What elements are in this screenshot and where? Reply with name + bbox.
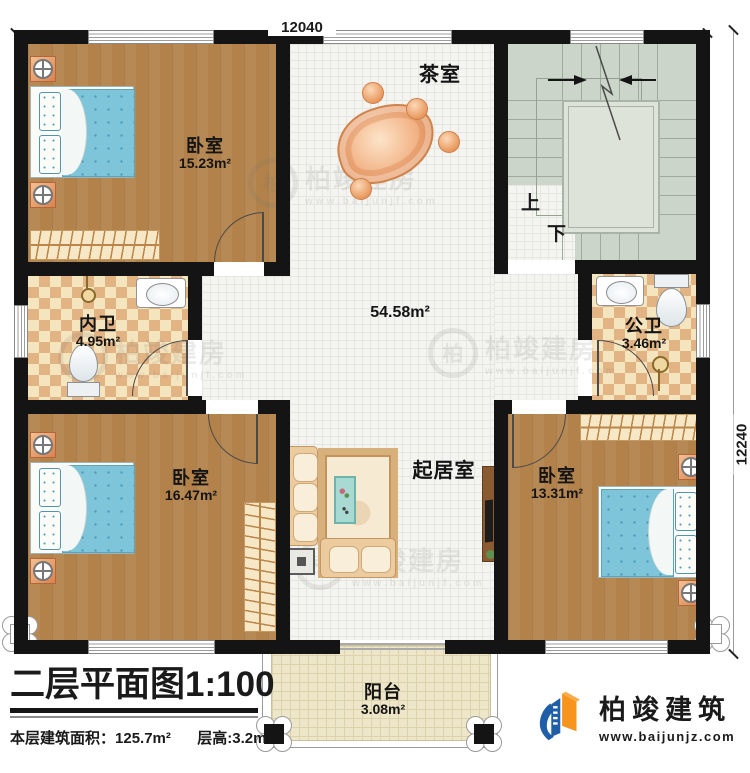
- wall: [188, 276, 202, 340]
- floor-drain-icon: [658, 369, 660, 391]
- hangers-icon: [245, 503, 275, 631]
- door-leaf: [186, 340, 188, 396]
- company-logo-text: 柏竣建筑 www.baijunjz.com: [599, 688, 735, 744]
- sink-basin: [606, 281, 637, 304]
- room-label-balcony: 阳台 3.08m²: [338, 682, 428, 718]
- window: [570, 30, 644, 44]
- room-label-bath-inner: 内卫 4.95m²: [52, 314, 144, 350]
- tea-stool: [362, 82, 384, 104]
- wall: [258, 400, 290, 414]
- wall: [14, 400, 206, 414]
- wall: [494, 30, 508, 274]
- window: [545, 640, 668, 654]
- window: [323, 30, 452, 44]
- room-label-bedroom-bl: 卧室 16.47m²: [136, 468, 246, 504]
- nightstand: [30, 432, 56, 458]
- floor-drain-icon: [652, 356, 669, 373]
- floor-area-value: 125.7m²: [115, 730, 171, 747]
- dimension-line-right: [733, 30, 734, 654]
- watermark-logo: 柏: [428, 328, 478, 378]
- title-underline: [10, 708, 258, 713]
- sofa-cushion: [293, 453, 318, 482]
- wall: [494, 414, 508, 654]
- pillow: [39, 511, 61, 550]
- balcony-sliding-door: [340, 643, 445, 645]
- sofa: [320, 538, 396, 578]
- side-table: [288, 548, 315, 575]
- wall: [14, 640, 88, 654]
- sink: [596, 276, 644, 306]
- room-label-bath-public: 公卫 3.46m²: [598, 316, 690, 352]
- window: [696, 304, 710, 358]
- wardrobe: [580, 414, 702, 441]
- wall: [276, 414, 290, 654]
- lamp-icon: [33, 561, 53, 581]
- table-lamp-icon: [297, 557, 306, 566]
- dimension-right: 12240: [734, 415, 750, 475]
- balcony-column-right: [466, 716, 502, 752]
- title-text: 二层平面图: [10, 665, 185, 704]
- floor-plan: 柏 柏竣建房 www.baijunjf.com 柏 柏竣建房 www.baiju…: [0, 0, 750, 773]
- dimension-top: 12040: [268, 19, 336, 36]
- wall: [566, 400, 710, 414]
- pillow: [39, 92, 61, 131]
- toilet-tank: [67, 382, 100, 397]
- sofa-cushion: [361, 546, 391, 573]
- lamp-icon: [33, 435, 53, 455]
- wall: [264, 262, 290, 276]
- tea-stool: [350, 178, 372, 200]
- room-label-bedroom-br: 卧室 13.31m²: [502, 466, 612, 502]
- hangers-icon: [581, 415, 701, 440]
- wardrobe: [30, 230, 160, 260]
- wardrobe: [244, 502, 276, 632]
- toilet-tank: [654, 274, 689, 288]
- window: [88, 30, 214, 44]
- wall: [668, 640, 710, 654]
- pillow: [675, 535, 697, 574]
- door-leaf: [512, 414, 514, 468]
- balcony-sliding-door: [340, 648, 445, 650]
- bed: [30, 462, 134, 554]
- lamp-icon: [33, 185, 53, 205]
- company-logo-icon: [536, 684, 590, 748]
- wall: [575, 260, 710, 274]
- company-name: 柏竣建筑: [599, 688, 735, 727]
- story-height-value: 3.2m: [232, 730, 266, 747]
- stair-direction-arrows: [508, 44, 696, 144]
- tv-icon: [485, 499, 493, 542]
- room-label-tearoom: 茶室: [405, 64, 475, 86]
- stair-down-label: 下: [547, 219, 566, 246]
- hangers-icon: [31, 231, 159, 259]
- window: [14, 305, 28, 358]
- lamp-icon: [33, 59, 53, 79]
- floor-stats: 本层建筑面积：125.7m² 层高:3.2m: [10, 727, 275, 748]
- wall: [494, 400, 512, 414]
- bed: [30, 86, 134, 178]
- company-website: www.baijunjz.com: [599, 729, 735, 744]
- pillow: [675, 492, 697, 531]
- title-scale: 1:100: [185, 665, 275, 704]
- room-label-bedroom-tl: 卧室 15.23m²: [150, 136, 260, 172]
- company-logo: 柏竣建筑 www.baijunjz.com: [536, 684, 735, 748]
- story-height-label: 层高:: [197, 730, 232, 747]
- toilet: [68, 344, 98, 396]
- floor-area-label: 本层建筑面积：: [10, 730, 115, 747]
- pillow: [39, 468, 61, 507]
- room-label-living: 起居室: [402, 460, 486, 482]
- nightstand: [30, 558, 56, 584]
- sofa-cushion: [293, 483, 318, 512]
- wall: [14, 262, 214, 276]
- title-underline-thin: [10, 716, 258, 718]
- door-leaf: [262, 212, 264, 262]
- window: [88, 640, 215, 654]
- wall: [452, 30, 570, 44]
- hall-area-label: 54.58m²: [350, 304, 450, 322]
- sink: [136, 278, 186, 308]
- stair-treads-bottom: [562, 230, 656, 260]
- page-title: 二层平面图1:100: [10, 656, 275, 707]
- wall: [276, 30, 290, 274]
- tea-stool: [438, 131, 460, 153]
- ceiling-lamp-icon: [81, 288, 96, 303]
- pillow: [39, 135, 61, 174]
- sofa-cushion: [293, 513, 318, 542]
- door-leaf: [256, 414, 258, 464]
- title-block: 二层平面图1:100 本层建筑面积：125.7m² 层高:3.2m: [10, 656, 275, 748]
- sofa-cushion: [329, 546, 359, 573]
- wall: [578, 274, 592, 340]
- tea-stool: [406, 98, 428, 120]
- sink-basin: [146, 283, 179, 306]
- coffee-table: [334, 476, 356, 524]
- bed: [598, 486, 702, 578]
- nightstand: [30, 182, 56, 208]
- nightstand: [30, 56, 56, 82]
- stair-up-label: 上: [521, 188, 540, 215]
